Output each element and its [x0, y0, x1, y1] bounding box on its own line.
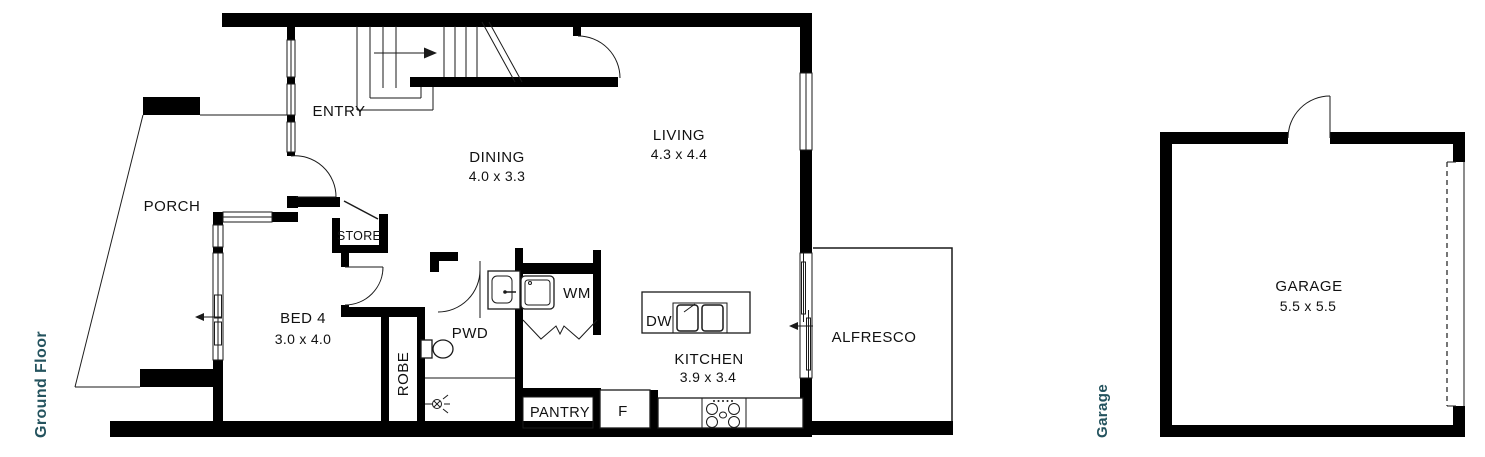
wall-robe-right	[417, 317, 425, 437]
wall-right-upper	[800, 13, 812, 73]
alfresco-sliding-door	[789, 253, 813, 378]
wall-stairs-bottom	[410, 77, 618, 87]
porch-diagonal-line	[75, 115, 143, 387]
garage-wall-top-right	[1330, 132, 1465, 144]
wall-alfresco-bottom	[812, 421, 953, 435]
wall-robe-left	[381, 317, 389, 437]
bed4-left-window-sliding	[195, 253, 223, 360]
label-pantry: PANTRY	[530, 405, 590, 421]
wall-entry-bottom	[296, 197, 340, 207]
label-dw: DW	[646, 313, 672, 330]
label-pwd: PWD	[452, 325, 489, 342]
label-fridge: F	[618, 403, 628, 420]
wall-pwd-hinge-stub	[430, 252, 439, 272]
toilet-icon	[421, 340, 453, 358]
wall-bed4-door-stub-top	[341, 252, 349, 267]
bed4-top-window	[223, 212, 272, 222]
wall-right-mid	[800, 150, 812, 253]
floorplan-canvas: PORCH ENTRY DINING 4.0 x 3.3 LIVING 4.3 …	[0, 0, 1485, 457]
bifold-doors	[523, 320, 597, 339]
wall-robe-top	[341, 307, 425, 317]
garage-wall-bottom	[1160, 425, 1465, 437]
vanity-sink-icon	[488, 271, 520, 309]
staircase	[357, 22, 522, 110]
front-door	[291, 156, 336, 197]
porch-outline	[75, 115, 287, 387]
dims-kitchen: 3.9 x 3.4	[680, 369, 736, 385]
floorplan-drawing: PORCH ENTRY DINING 4.0 x 3.3 LIVING 4.3 …	[0, 0, 1485, 457]
bed4-left-window-upper	[213, 225, 223, 247]
wall-bed4-top	[272, 212, 298, 222]
wall-bed4-left-tie	[213, 247, 223, 253]
dims-living: 4.3 x 4.4	[651, 146, 707, 162]
label-porch: PORCH	[144, 198, 201, 215]
stair-cupboard-door	[578, 36, 620, 78]
ground-floor-title: Ground Floor	[33, 331, 50, 438]
dims-dining: 4.0 x 3.3	[469, 168, 525, 184]
label-alfresco: ALFRESCO	[832, 329, 917, 346]
garage-title: Garage	[1094, 384, 1111, 438]
label-garage: GARAGE	[1275, 278, 1342, 295]
house-walls	[110, 13, 953, 437]
stair-break-line	[482, 22, 515, 82]
window-direction-arrow	[195, 313, 204, 321]
entry-window-2	[287, 84, 295, 115]
label-kitchen: KITCHEN	[674, 351, 743, 368]
entry-window-1	[287, 40, 295, 77]
doors	[291, 36, 1464, 406]
bed4-door	[345, 267, 383, 305]
dims-bed4: 3.0 x 4.0	[275, 331, 331, 347]
label-store: STORE	[337, 229, 381, 243]
pwd-door	[438, 270, 480, 312]
dims-garage: 5.5 x 5.5	[1280, 298, 1336, 314]
stair-break-line	[489, 22, 522, 82]
label-robe: ROBE	[395, 352, 412, 397]
wall-left-lower-bar	[140, 369, 213, 387]
wall-entry-left-2	[287, 77, 295, 84]
label-bed4: BED 4	[280, 310, 326, 327]
living-right-window	[800, 73, 812, 150]
washing-machine-icon	[521, 276, 554, 309]
wall-top	[222, 13, 810, 27]
label-living: LIVING	[653, 127, 705, 144]
wall-pantry-top	[515, 388, 601, 397]
garage-panel-door	[1447, 162, 1464, 406]
wall-fridge-jamb	[650, 390, 658, 437]
label-wm: WM	[563, 285, 591, 302]
porch-pier	[143, 97, 200, 115]
wall-entry-left-3	[287, 115, 295, 122]
light-icon	[425, 395, 450, 413]
label-entry: ENTRY	[312, 103, 365, 120]
entry-window-3	[287, 122, 295, 152]
garage-rear-door	[1288, 96, 1330, 138]
garage-wall-left	[1160, 132, 1172, 437]
garage-wall-top-left	[1160, 132, 1288, 144]
wall-stair-door-jamb	[573, 27, 581, 36]
label-dining: DINING	[469, 149, 525, 166]
door-direction-arrow	[789, 322, 798, 330]
garage-wall-right-top	[1453, 132, 1465, 162]
wall-laundry-top	[515, 263, 601, 274]
wall-bed4-left-lower	[213, 360, 223, 437]
store-door	[344, 201, 378, 219]
wall-entry-left-1	[287, 26, 295, 40]
wall-bed4-corner	[213, 212, 223, 225]
